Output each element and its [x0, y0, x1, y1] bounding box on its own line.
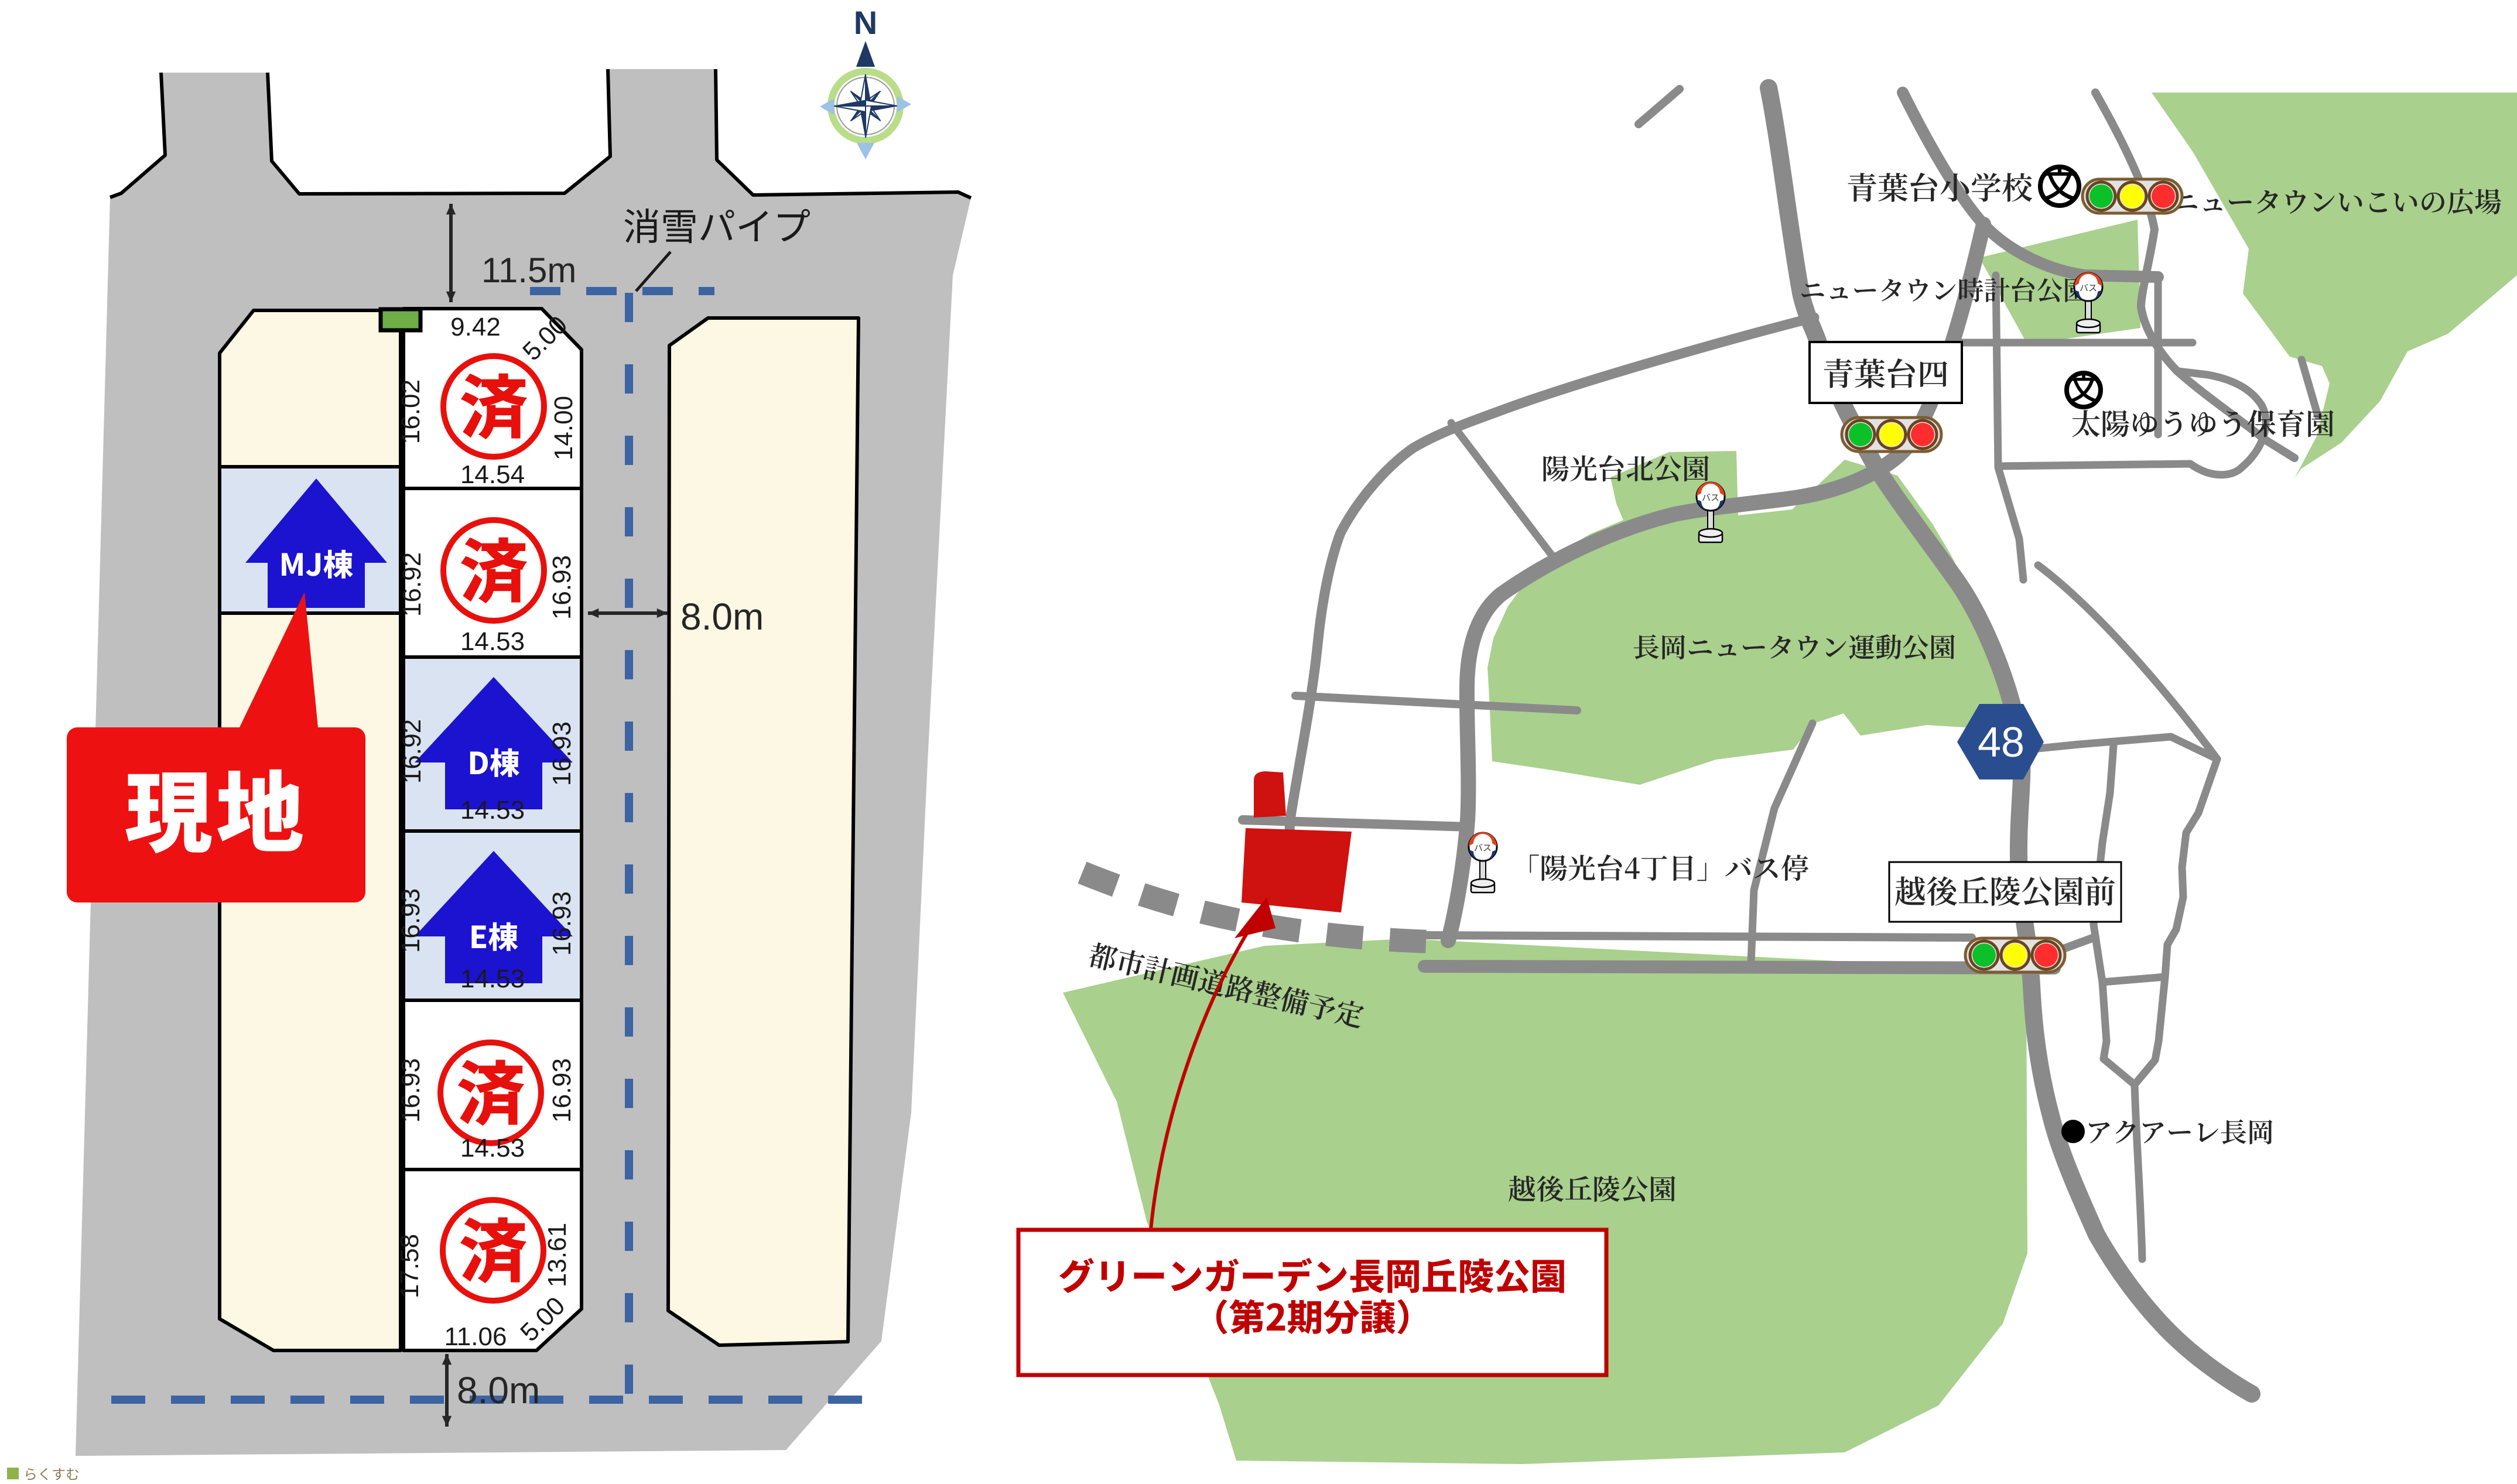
svg-text:16.93: 16.93: [396, 888, 425, 953]
svg-text:14.00: 14.00: [549, 396, 578, 460]
svg-text:8.0m: 8.0m: [457, 1369, 540, 1411]
svg-text:11.06: 11.06: [444, 1322, 507, 1351]
svg-text:16.92: 16.92: [398, 552, 426, 617]
svg-text:14.53: 14.53: [460, 627, 525, 656]
svg-text:14.53: 14.53: [460, 965, 525, 993]
svg-text:N: N: [854, 4, 877, 41]
svg-text:16.92: 16.92: [398, 719, 426, 784]
svg-text:16.02: 16.02: [396, 379, 425, 444]
svg-text:11.5m: 11.5m: [481, 251, 576, 290]
svg-text:17.58: 17.58: [395, 1234, 424, 1298]
svg-text:14.54: 14.54: [460, 460, 525, 489]
svg-text:16.93: 16.93: [548, 891, 576, 956]
svg-text:48: 48: [1978, 719, 2024, 766]
svg-text:16.93: 16.93: [548, 1058, 576, 1123]
svg-text:16.93: 16.93: [548, 722, 576, 786]
svg-text:13.61: 13.61: [543, 1223, 572, 1287]
svg-text:14.53: 14.53: [460, 796, 525, 825]
svg-text:16.93: 16.93: [396, 1058, 425, 1123]
svg-text:9.42: 9.42: [450, 313, 501, 341]
svg-text:14.53: 14.53: [460, 1134, 525, 1162]
svg-text:16.93: 16.93: [548, 555, 576, 620]
svg-text:8.0m: 8.0m: [680, 596, 764, 638]
